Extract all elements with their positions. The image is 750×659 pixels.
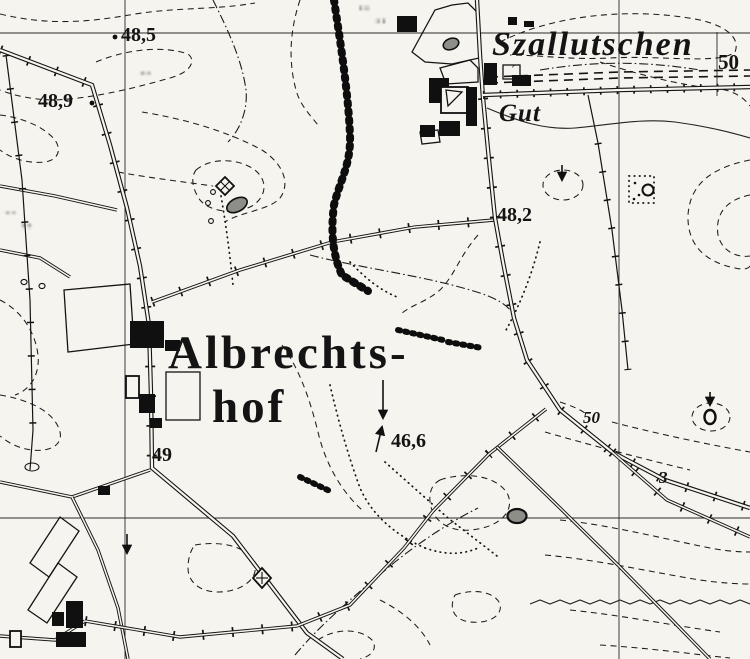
spot-dot-485 [113,35,118,40]
map-canvas [0,0,750,659]
gravel-pit [629,176,654,203]
depression-north [543,170,583,200]
garden-west [64,284,134,352]
stream-south [530,600,750,604]
historical-topographic-map: Szallutschen Gut Albrechts- hof 50 48,54… [0,0,750,659]
depression-east [692,403,730,431]
pond-south [508,509,527,523]
stream-north [487,108,750,138]
spot-dot-489 [90,101,95,106]
